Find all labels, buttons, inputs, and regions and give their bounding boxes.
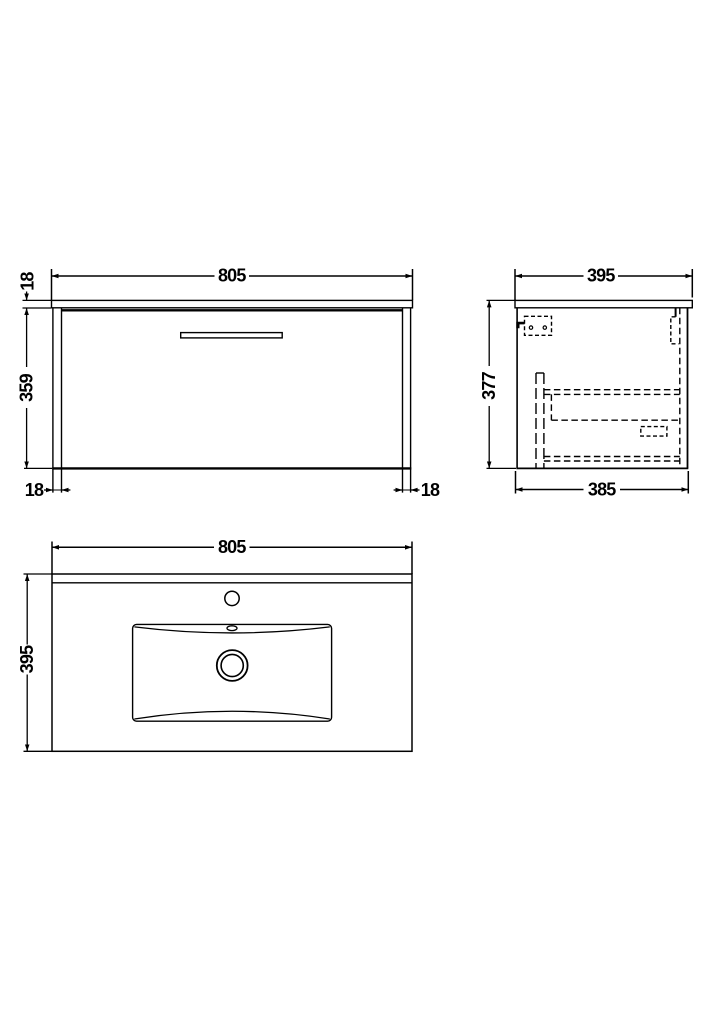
svg-text:385: 385: [588, 480, 616, 500]
svg-text:359: 359: [17, 373, 37, 401]
svg-text:18: 18: [25, 480, 44, 500]
svg-text:805: 805: [218, 537, 246, 557]
svg-text:805: 805: [218, 266, 246, 286]
svg-text:395: 395: [17, 645, 37, 673]
svg-text:395: 395: [587, 266, 615, 286]
svg-text:18: 18: [421, 480, 440, 500]
svg-text:377: 377: [479, 371, 499, 399]
svg-text:18: 18: [18, 272, 38, 291]
